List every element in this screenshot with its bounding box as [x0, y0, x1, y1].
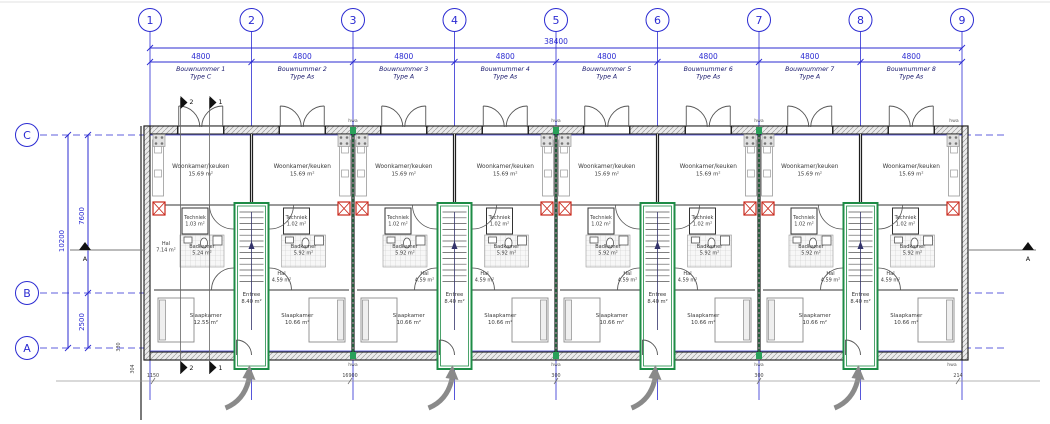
stove	[153, 135, 165, 147]
kitchen-appliance	[748, 170, 755, 177]
burner	[764, 142, 767, 145]
type-label-6: Type As	[696, 74, 721, 81]
burner	[543, 142, 546, 145]
room-area-hall: 4.59 m²	[678, 278, 698, 284]
kitchen-appliance	[561, 170, 568, 177]
room-label-bed: Slaapkamer	[687, 313, 720, 319]
room-label-entree: Entree	[649, 292, 667, 298]
dim-bottom-1: 1150	[147, 373, 159, 379]
french-door-arc	[709, 106, 730, 127]
bouwnummer-label-4: Bouwnummer 4	[481, 66, 530, 73]
burner	[161, 142, 164, 145]
room-area-tech: 1.02 m²	[896, 222, 916, 228]
bouwnummer-label-2: Bouwnummer 2	[278, 66, 327, 73]
burner	[949, 142, 952, 145]
room-area-tech: 1.02 m²	[693, 222, 713, 228]
room-label-hall: Hal	[683, 271, 691, 277]
type-label-2: Type As	[290, 74, 315, 81]
room-label-hall: Hal	[277, 271, 285, 277]
grid-bubble-label-4: 4	[451, 14, 458, 27]
bouwnummer-label-3: Bouwnummer 3	[379, 66, 428, 73]
room-area-entree: 8.40 m²	[241, 299, 261, 305]
dim-total-width: 38400	[544, 37, 568, 46]
room-area-hall: 4.59 m²	[821, 278, 841, 284]
room-area-living: 15.69 m²	[696, 171, 721, 178]
french-door-arc	[788, 106, 809, 127]
grid-bubble-label-1: 1	[147, 14, 154, 27]
room-label-bath: Badkamer	[392, 244, 418, 250]
room-label-entree: Entree	[243, 292, 261, 298]
kitchen-appliance	[155, 170, 162, 177]
section-label-top-1: 1	[218, 98, 222, 106]
dim-bottom-5: 300	[754, 373, 763, 379]
room-area-living: 15.69 m²	[797, 171, 822, 178]
dim-bottom-0: 304	[130, 364, 136, 373]
kitchen-sink	[764, 146, 771, 153]
french-door-arc	[382, 106, 403, 127]
hwa-label: hwa	[947, 362, 957, 368]
type-label-7: Type A	[799, 74, 820, 81]
room-label-living: Woonkamer/keuken	[883, 164, 941, 170]
bed-pillow	[338, 300, 344, 340]
french-door-arc	[608, 106, 629, 127]
room-area-tech: 1.02 m²	[490, 222, 510, 228]
hwa-label: hwa	[348, 118, 358, 124]
room-label-living: Woonkamer/keuken	[375, 164, 433, 170]
hwa-label: hwa	[754, 362, 764, 368]
washbasin	[590, 237, 598, 243]
kitchen-sink	[748, 146, 755, 153]
section-a-triangle-right	[1022, 242, 1034, 250]
washbasin	[489, 237, 497, 243]
room-label-bath: Badkamer	[189, 244, 215, 250]
dim-bay-7: 4800	[800, 52, 819, 61]
room-area-entree: 8.40 m²	[647, 299, 667, 305]
section-flag-bottom	[181, 361, 188, 374]
room-area-living: 15.69 m²	[493, 171, 518, 178]
room-label-bath: Badkamer	[900, 244, 926, 250]
kitchen-appliance	[545, 170, 552, 177]
french-door-arc	[483, 106, 504, 127]
room-area-hall: 4.59 m²	[881, 278, 901, 284]
washbasin	[387, 237, 395, 243]
washbasin	[184, 237, 192, 243]
bed-pillow	[160, 300, 166, 340]
burner	[155, 142, 158, 145]
room-label-bed: Slaapkamer	[596, 313, 629, 319]
room-label-bed: Slaapkamer	[799, 313, 832, 319]
kitchen-sink	[951, 146, 958, 153]
burner	[746, 142, 749, 145]
room-area-living: 15.69 m²	[391, 171, 416, 178]
burner	[340, 136, 343, 139]
room-label-living: Woonkamer/keuken	[578, 164, 636, 170]
room-label-bed: Slaapkamer	[281, 313, 314, 319]
burner	[549, 136, 552, 139]
room-label-tech: Techniek	[894, 215, 917, 221]
dim-b-to-a: 2500	[78, 313, 86, 331]
shaft-top	[756, 127, 762, 134]
room-label-tech: Techniek	[691, 215, 714, 221]
room-label-tech: Techniek	[285, 215, 308, 221]
room-area-bath: 5.92 m²	[801, 251, 821, 257]
section-a-label-left: A	[83, 255, 88, 263]
room-label-bed: Slaapkamer	[190, 313, 223, 319]
grid-bubble-label-6: 6	[654, 14, 661, 27]
room-area-bed: 10.66 m²	[396, 319, 421, 326]
room-area-tech: 1.02 m²	[591, 222, 611, 228]
room-label-bath: Badkamer	[291, 244, 317, 250]
room-area-living: 15.69 m²	[899, 171, 924, 178]
room-label-entree: Entree	[852, 292, 870, 298]
shaft-bottom	[756, 352, 762, 359]
room-label-living: Woonkamer/keuken	[781, 164, 839, 170]
grid-bubble-label-8: 8	[857, 14, 864, 27]
room-area-bath: 5.24 m²	[192, 251, 212, 257]
french-door-arc	[202, 106, 223, 127]
dim-bottom-2: 330	[116, 342, 122, 351]
bouwnummer-label-7: Bouwnummer 7	[785, 66, 834, 73]
room-area-bed: 10.66 m²	[894, 319, 919, 326]
floor-plan: 123456789CBA3840048004800480048004800480…	[0, 0, 1050, 424]
room-area-living: 15.69 m²	[594, 171, 619, 178]
room-label-bed: Slaapkamer	[393, 313, 426, 319]
dim-bay-2: 4800	[293, 52, 312, 61]
washbasin	[286, 237, 294, 243]
french-door-arc	[303, 106, 324, 127]
washbasin	[793, 237, 801, 243]
bed-pillow	[566, 300, 572, 340]
bed-pillow	[947, 300, 953, 340]
dim-bottom-6: 214	[953, 373, 962, 379]
bed-pillow	[744, 300, 750, 340]
room-label-hall: Hal	[623, 271, 631, 277]
burner	[346, 136, 349, 139]
french-door-arc	[280, 106, 301, 127]
room-label-tech: Techniek	[488, 215, 511, 221]
dim-bottom-3: 16900	[342, 373, 357, 379]
room-area-hall: 4.59 m²	[618, 278, 638, 284]
french-door-arc	[686, 106, 707, 127]
burner	[364, 136, 367, 139]
section-label-bottom-2: 2	[189, 364, 193, 372]
grid-bubble-label-7: 7	[756, 14, 763, 27]
burner	[358, 142, 361, 145]
hwa-label: hwa	[754, 118, 764, 124]
kitchen-sink	[342, 146, 349, 153]
section-a-triangle-left	[79, 242, 91, 250]
room-label-hall: Hal	[886, 271, 894, 277]
room-label-tech: Techniek	[183, 215, 206, 221]
dim-c-to-b: 7600	[78, 207, 86, 225]
bouwnummer-label-1: Bouwnummer 1	[176, 66, 225, 73]
room-label-bath: Badkamer	[494, 244, 520, 250]
room-label-living: Woonkamer/keuken	[680, 164, 738, 170]
type-label-5: Type A	[596, 74, 617, 81]
section-label-bottom-1: 1	[218, 364, 222, 372]
burner	[561, 136, 564, 139]
burner	[364, 142, 367, 145]
stove	[541, 135, 553, 147]
section-flag-bottom	[210, 361, 217, 374]
room-area-bed: 10.66 m²	[691, 319, 716, 326]
exterior-wall-right	[962, 126, 968, 360]
dim-bay-8: 4800	[902, 52, 921, 61]
french-door-arc	[506, 106, 527, 127]
burner	[567, 142, 570, 145]
room-area-tech: 1.02 m²	[287, 222, 307, 228]
washbasin	[692, 237, 700, 243]
shaft-top	[350, 127, 356, 134]
room-area-tech: 1.02 m²	[794, 222, 814, 228]
room-area-bath: 5.92 m²	[700, 251, 720, 257]
room-label-tech: Techniek	[386, 215, 409, 221]
floor-plan-svg: 123456789CBA3840048004800480048004800480…	[0, 0, 1050, 424]
room-area-entree: 8.40 m²	[850, 299, 870, 305]
room-area-bed: 10.66 m²	[285, 319, 310, 326]
type-label-1: Type C	[190, 74, 212, 81]
section-label-top-2: 2	[189, 98, 193, 106]
burner	[567, 136, 570, 139]
room-label-hall: Hal	[162, 241, 170, 247]
exterior-wall-left	[144, 126, 150, 360]
hwa-label: hwa	[348, 362, 358, 368]
room-area-bed: 12.55 m²	[193, 319, 218, 326]
french-door-arc	[811, 106, 832, 127]
room-label-living: Woonkamer/keuken	[274, 164, 332, 170]
kitchen-sink	[545, 146, 552, 153]
grid-bubble-label-A: A	[23, 342, 31, 355]
burner	[340, 142, 343, 145]
kitchen-appliance	[951, 170, 958, 177]
grid-bubble-label-9: 9	[959, 14, 966, 27]
french-door-arc	[889, 106, 910, 127]
stove	[338, 135, 350, 147]
french-door-arc	[585, 106, 606, 127]
french-door-arc	[912, 106, 933, 127]
room-area-bath: 5.92 m²	[294, 251, 314, 257]
washbasin	[895, 237, 903, 243]
burner	[770, 142, 773, 145]
burner	[764, 136, 767, 139]
room-area-living: 15.69 m²	[290, 171, 315, 178]
section-a-label-right: A	[1026, 255, 1031, 263]
burner	[949, 136, 952, 139]
room-area-hall: 4.59 m²	[475, 278, 495, 284]
kitchen-appliance	[342, 170, 349, 177]
burner	[955, 136, 958, 139]
bed-pillow	[363, 300, 369, 340]
type-label-4: Type As	[493, 74, 518, 81]
burner	[543, 136, 546, 139]
burner	[358, 136, 361, 139]
burner	[549, 142, 552, 145]
kitchen-appliance	[358, 170, 365, 177]
kitchen-sink	[561, 146, 568, 153]
room-label-bath: Badkamer	[595, 244, 621, 250]
hwa-label: hwa	[949, 118, 959, 124]
room-label-bed: Slaapkamer	[890, 313, 923, 319]
room-label-living: Woonkamer/keuken	[477, 164, 535, 170]
dimensions-left: 1020076002500	[58, 132, 91, 351]
french-door-arc	[405, 106, 426, 127]
shaft-bottom	[350, 352, 356, 359]
room-area-tech: 1.02 m²	[388, 222, 408, 228]
dim-bay-5: 4800	[597, 52, 616, 61]
type-label-3: Type A	[393, 74, 414, 81]
room-area-entree: 8.40 m²	[444, 299, 464, 305]
bouwnummer-label-5: Bouwnummer 5	[582, 66, 631, 73]
burner	[752, 142, 755, 145]
room-label-hall: Hal	[826, 271, 834, 277]
stove	[559, 135, 571, 147]
room-area-hall: 4.59 m²	[272, 278, 292, 284]
burner	[955, 142, 958, 145]
kitchen-appliance	[764, 170, 771, 177]
burner	[746, 136, 749, 139]
room-area-bath: 5.92 m²	[598, 251, 618, 257]
room-label-tech: Techniek	[792, 215, 815, 221]
bed-pillow	[541, 300, 547, 340]
stove	[947, 135, 959, 147]
type-label-8: Type As	[899, 74, 924, 81]
room-label-hall: Hal	[480, 271, 488, 277]
dim-bay-4: 4800	[496, 52, 515, 61]
dim-total-depth: 10200	[58, 230, 66, 252]
grid-bubble-label-2: 2	[248, 14, 255, 27]
room-label-entree: Entree	[446, 292, 464, 298]
burner	[561, 142, 564, 145]
room-label-bed: Slaapkamer	[484, 313, 517, 319]
stove	[762, 135, 774, 147]
stove	[356, 135, 368, 147]
burner	[155, 136, 158, 139]
room-area-hall: 7.14 m²	[156, 248, 176, 254]
shaft-bottom	[553, 352, 559, 359]
shaft-top	[553, 127, 559, 134]
grid-bubble-label-B: B	[23, 287, 31, 300]
room-area-bed: 10.66 m²	[802, 319, 827, 326]
room-area-bath: 5.92 m²	[497, 251, 517, 257]
dim-bay-6: 4800	[699, 52, 718, 61]
room-area-bath: 5.92 m²	[395, 251, 415, 257]
grid-bubble-label-5: 5	[553, 14, 560, 27]
burner	[346, 142, 349, 145]
stove	[744, 135, 756, 147]
grid-bubble-label-3: 3	[350, 14, 357, 27]
bouwnummer-label-6: Bouwnummer 6	[684, 66, 733, 73]
room-label-bath: Badkamer	[798, 244, 824, 250]
burner	[752, 136, 755, 139]
french-door-arc	[179, 106, 200, 127]
burner	[770, 136, 773, 139]
room-area-bath: 5.92 m²	[903, 251, 923, 257]
room-label-tech: Techniek	[589, 215, 612, 221]
kitchen-sink	[155, 146, 162, 153]
room-area-bed: 10.66 m²	[599, 319, 624, 326]
bouwnummer-label-8: Bouwnummer 8	[887, 66, 936, 73]
room-area-bed: 10.66 m²	[488, 319, 513, 326]
room-label-hall: Hal	[420, 271, 428, 277]
kitchen-sink	[358, 146, 365, 153]
room-area-tech: 1.03 m²	[185, 222, 205, 228]
hwa-label: hwa	[551, 362, 561, 368]
dim-bay-1: 4800	[191, 52, 210, 61]
room-area-hall: 4.59 m²	[415, 278, 435, 284]
burner	[161, 136, 164, 139]
hwa-label: hwa	[551, 118, 561, 124]
bed-pillow	[769, 300, 775, 340]
dim-bay-3: 4800	[394, 52, 413, 61]
dim-bottom-4: 300	[551, 373, 560, 379]
grid-bubble-label-C: C	[23, 129, 31, 142]
room-label-bath: Badkamer	[697, 244, 723, 250]
